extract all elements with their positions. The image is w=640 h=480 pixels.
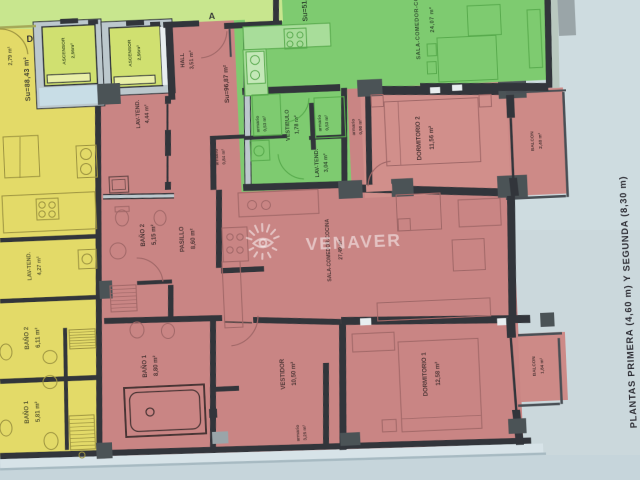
- svg-text:BAÑO 1: BAÑO 1: [141, 354, 149, 378]
- svg-text:PASILLO: PASILLO: [179, 226, 186, 252]
- svg-text:armario: armario: [214, 148, 220, 165]
- svg-text:11,56 m²: 11,56 m²: [428, 126, 436, 150]
- svg-text:D: D: [26, 34, 33, 44]
- svg-text:3,04 m²: 3,04 m²: [322, 153, 330, 172]
- svg-text:0,90 m²: 0,90 m²: [358, 118, 364, 134]
- svg-text:BAÑO 2: BAÑO 2: [139, 223, 147, 247]
- svg-text:BAÑO 1: BAÑO 1: [23, 400, 31, 424]
- svg-text:0,53 m²: 0,53 m²: [324, 115, 330, 131]
- svg-text:5,15 m²: 5,15 m²: [150, 224, 158, 245]
- svg-text:A: A: [208, 11, 215, 21]
- svg-text:6,11 m²: 6,11 m²: [34, 327, 42, 348]
- svg-text:ASCENSOR: ASCENSOR: [61, 37, 68, 65]
- svg-text:armario: armario: [351, 119, 357, 136]
- svg-text:2,79 m²: 2,79 m²: [6, 46, 14, 65]
- svg-text:2,40 m²: 2,40 m²: [537, 132, 543, 149]
- svg-text:HALL: HALL: [180, 52, 187, 68]
- svg-text:8,80 m²: 8,80 m²: [152, 355, 160, 376]
- svg-text:Su=51,96 m²: Su=51,96 m²: [300, 0, 309, 22]
- svg-text:0,84 m²: 0,84 m²: [221, 148, 227, 164]
- svg-text:5,81 m²: 5,81 m²: [34, 401, 42, 422]
- svg-text:2,56m²: 2,56m²: [70, 43, 77, 59]
- svg-text:1,84 m²: 1,84 m²: [539, 357, 545, 374]
- svg-text:ASCENSOR: ASCENSOR: [127, 39, 134, 67]
- svg-text:12,58 m²: 12,58 m²: [434, 362, 442, 386]
- svg-text:BAÑO 2: BAÑO 2: [23, 326, 31, 350]
- svg-text:armario: armario: [255, 116, 261, 133]
- svg-text:8,60 m²: 8,60 m²: [189, 228, 197, 249]
- svg-text:1,78 m²: 1,78 m²: [293, 115, 301, 134]
- svg-text:4,44 m²: 4,44 m²: [143, 104, 151, 123]
- svg-text:2,56m²: 2,56m²: [136, 45, 143, 61]
- svg-text:24,07 m²: 24,07 m²: [428, 6, 436, 32]
- svg-text:10,50 m²: 10,50 m²: [290, 362, 298, 386]
- svg-text:armario: armario: [317, 115, 323, 132]
- svg-text:BALCON: BALCON: [531, 356, 537, 377]
- svg-text:0,53 m²: 0,53 m²: [262, 115, 268, 131]
- svg-text:4,27 m²: 4,27 m²: [35, 256, 43, 275]
- svg-text:BALCON: BALCON: [529, 131, 535, 152]
- svg-text:3,51 m²: 3,51 m²: [188, 50, 196, 69]
- svg-text:armario: armario: [295, 425, 301, 442]
- svg-text:3,25 m²: 3,25 m²: [302, 424, 308, 440]
